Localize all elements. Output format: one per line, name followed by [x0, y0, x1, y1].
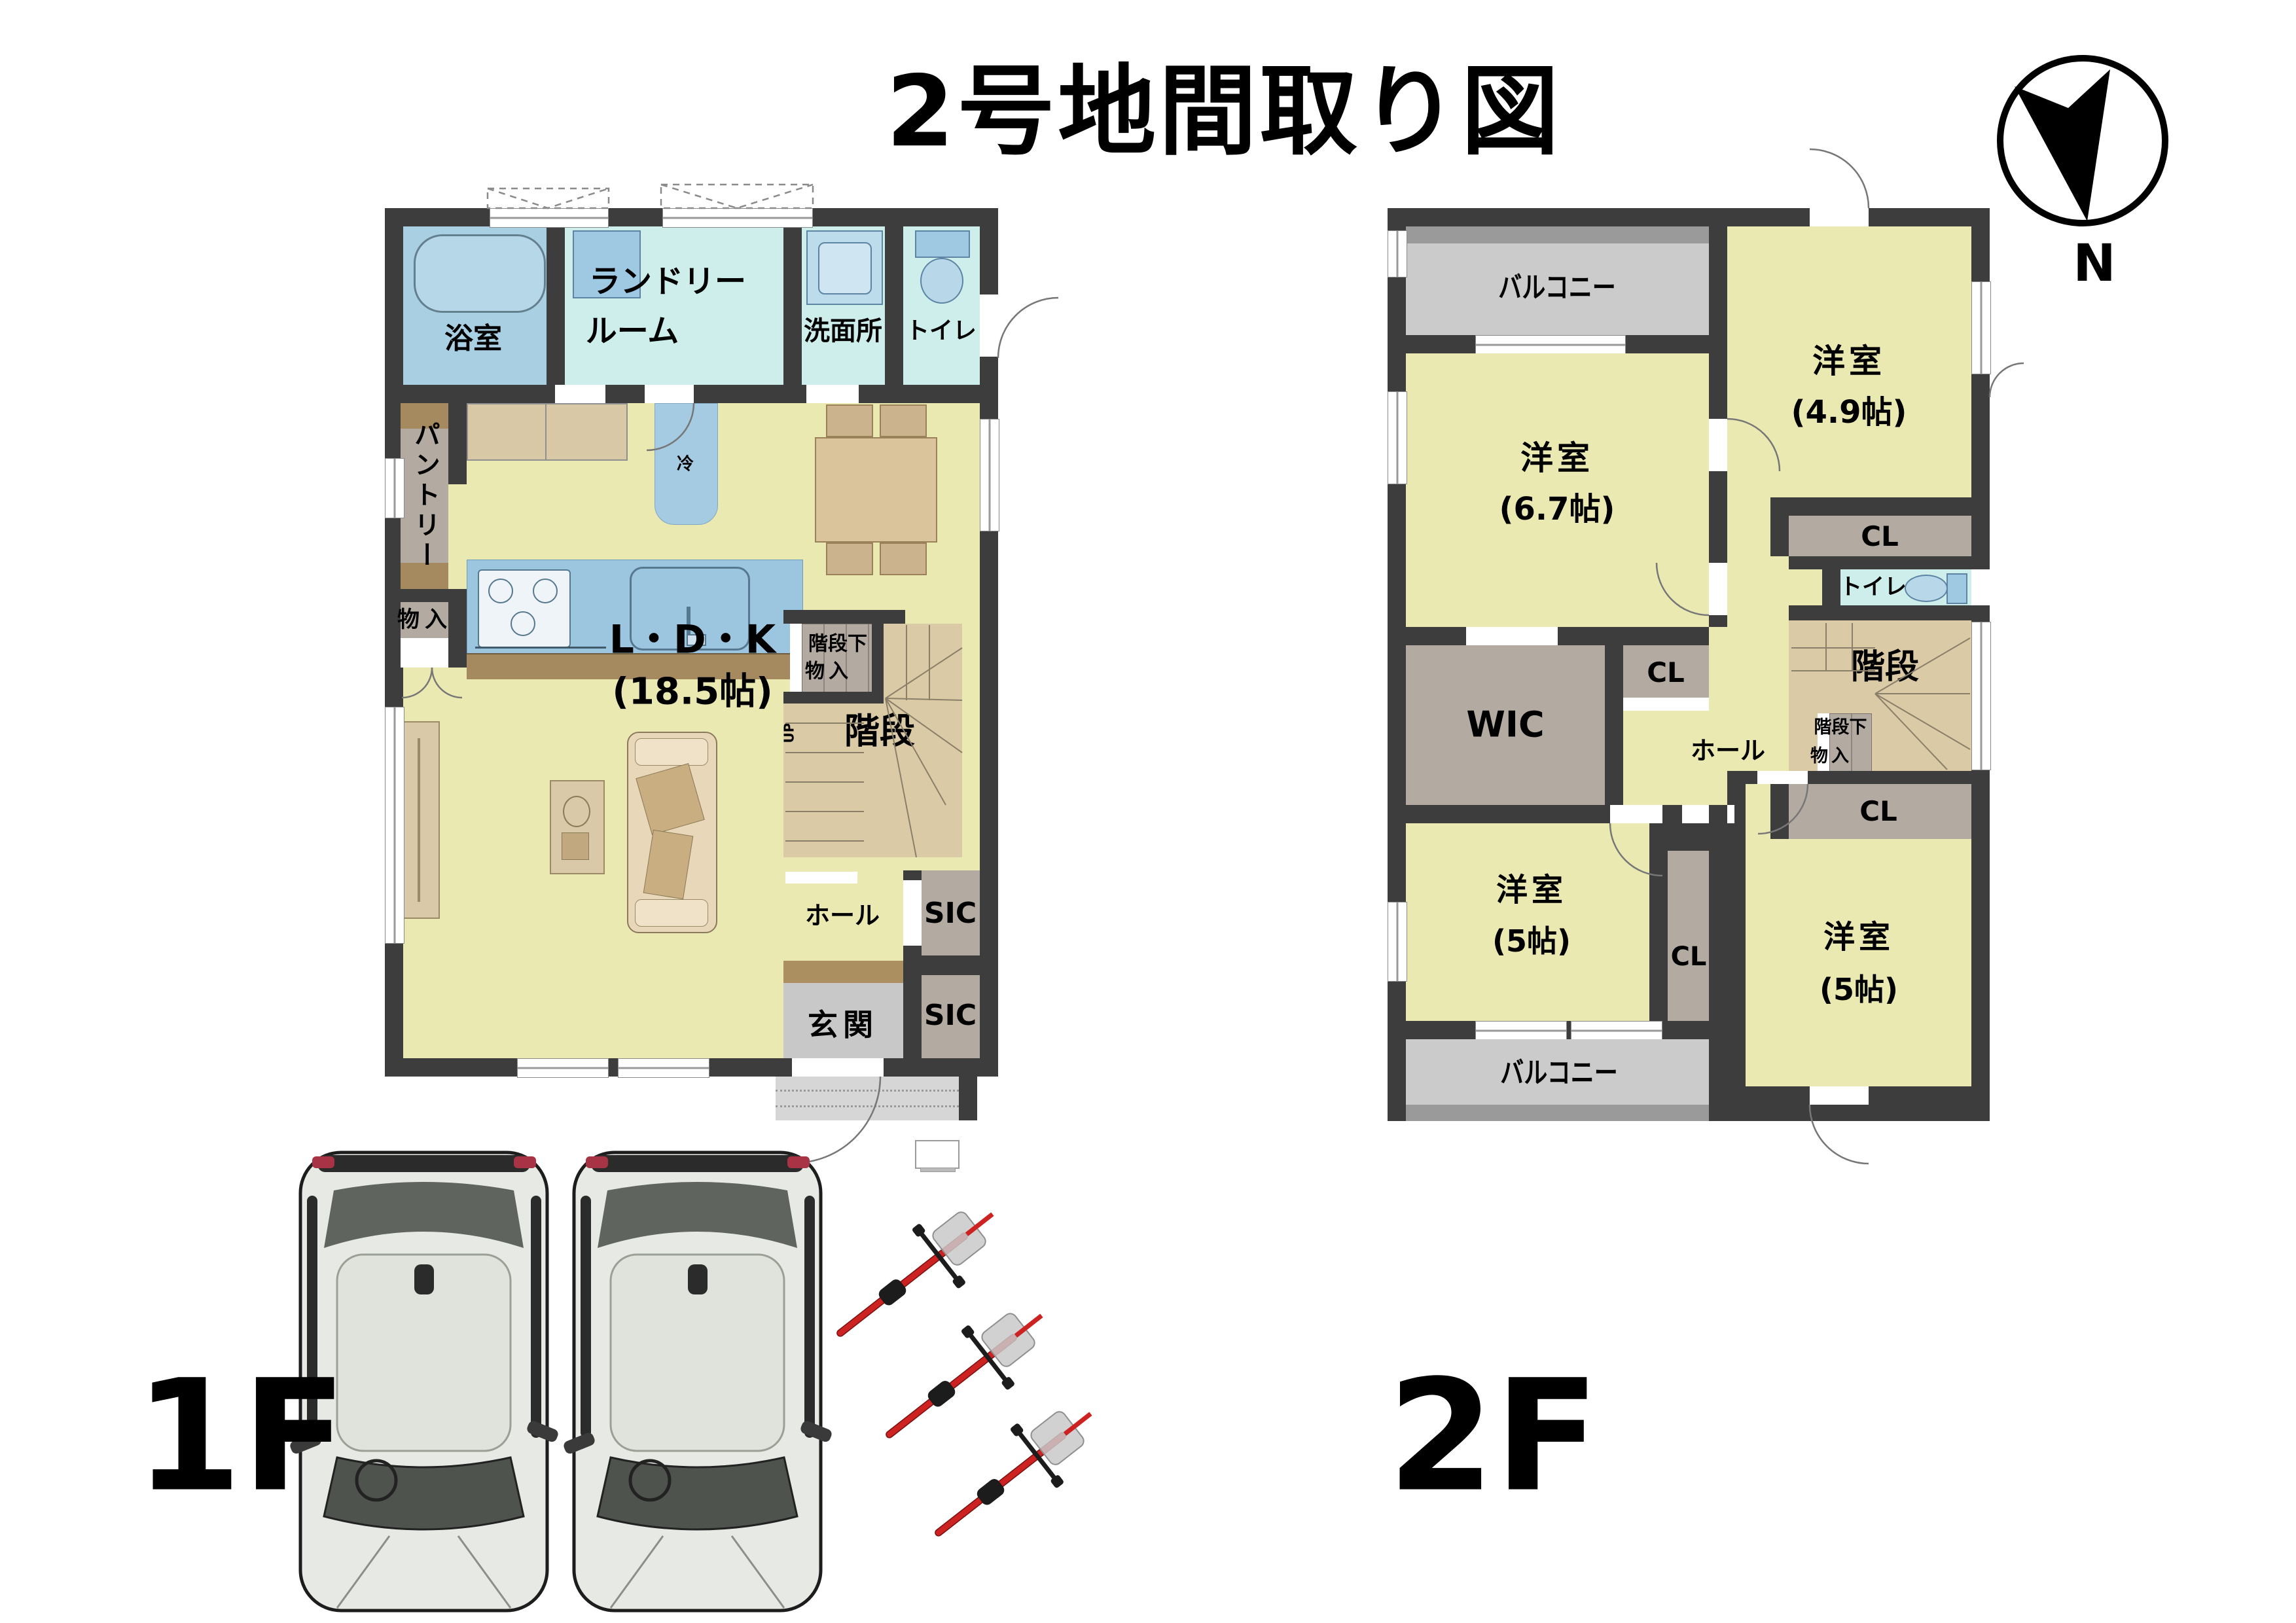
floor2-label: 2F: [1388, 1357, 1600, 1518]
bicycle-icon: [818, 1211, 1080, 1577]
car-icon: [571, 1150, 823, 1614]
floorplan-page: { "title": "2号地間取り図", "compass": { "nort…: [0, 0, 2296, 1623]
floor1-label: 1F: [135, 1357, 347, 1518]
